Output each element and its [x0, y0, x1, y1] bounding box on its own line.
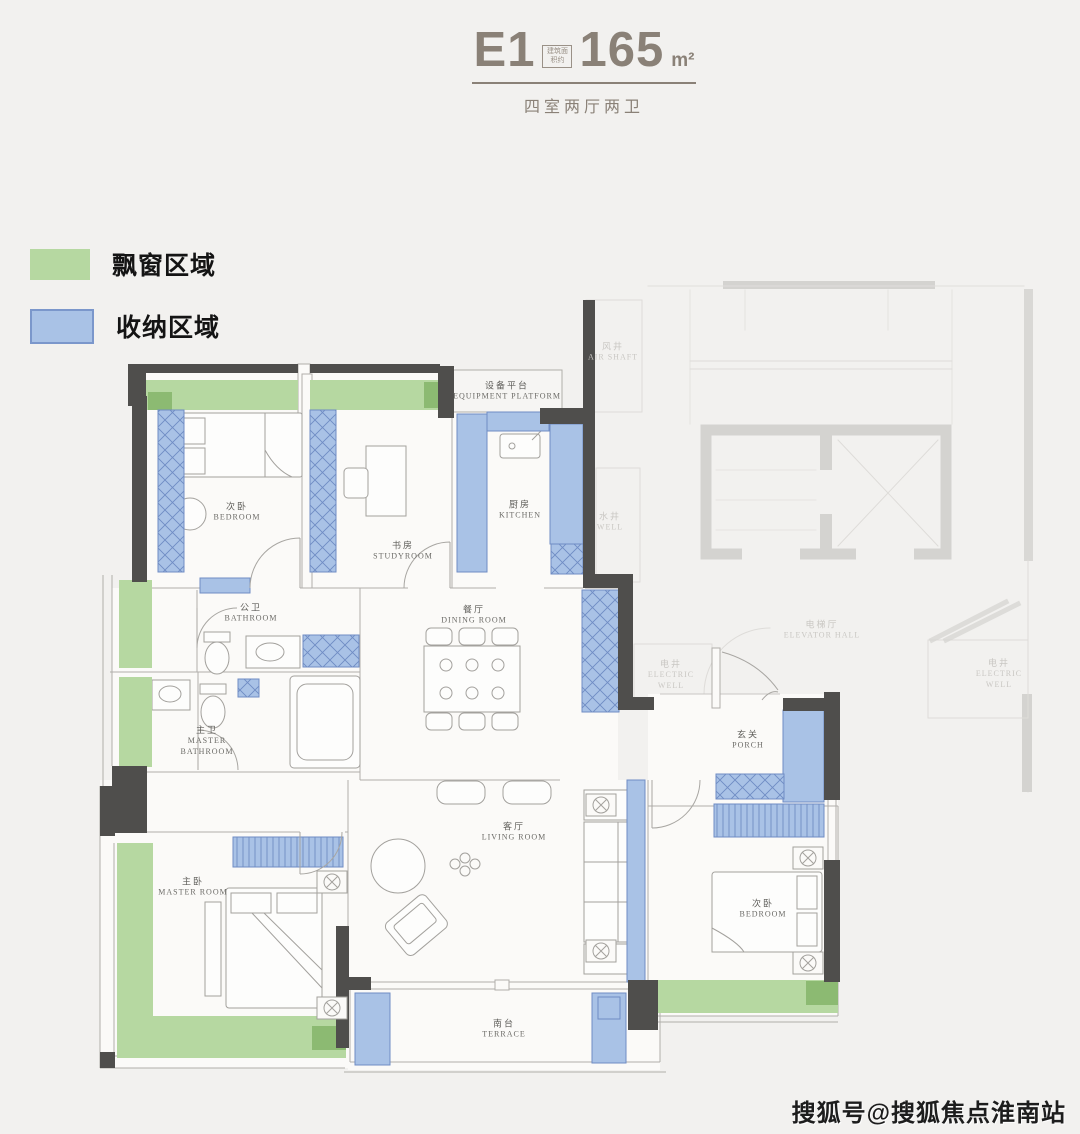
bay-window-zone: [310, 380, 444, 410]
legend: 飘窗区域 收纳区域: [30, 246, 220, 370]
dining-table: [424, 646, 520, 712]
storage-zone-closet: [158, 410, 184, 572]
bay-window-zone: [119, 580, 152, 668]
legend-item-storage: 收纳区域: [30, 308, 220, 344]
storage-zone-counter: [457, 414, 487, 572]
area-unit: m²: [671, 50, 694, 72]
elevator-cab-cross: [838, 440, 938, 546]
storage-zone-terrace: [355, 993, 390, 1065]
storage-zone-cabinet: [551, 544, 583, 574]
plan-subtitle: 四室两厅两卫: [472, 93, 696, 117]
watermark: 搜狐号@搜狐焦点淮南站: [792, 1093, 1066, 1128]
desk: [366, 446, 406, 516]
toilet-tank: [204, 632, 230, 642]
title-divider: [472, 82, 696, 84]
bathtub: [290, 676, 360, 768]
water-well-outline: [596, 468, 640, 582]
legend-item-bay-window: 飘窗区域: [30, 246, 220, 282]
legend-label: 飘窗区域: [112, 246, 216, 282]
column-marker: [793, 847, 823, 869]
toilet-tank-master: [200, 684, 226, 694]
plan-title-row: E1 建筑面积约 165 m²: [472, 26, 696, 75]
toilet: [205, 642, 229, 674]
storage-zone-closet: [310, 410, 336, 572]
plan-title-block: E1 建筑面积约 165 m² 四室两厅两卫: [472, 26, 696, 117]
storage-zone-terrace: [592, 993, 626, 1063]
bay-window-zone: [119, 677, 152, 767]
plan-code: E1: [474, 26, 536, 75]
column-marker: [586, 940, 616, 962]
sofa: [584, 822, 628, 942]
electric-well-right-outline: [928, 640, 1028, 718]
storage-zone-shoe-cabinet: [714, 804, 824, 837]
storage-zone: [200, 578, 250, 593]
column-marker: [793, 952, 823, 974]
storage-zone-cabinet: [550, 424, 583, 544]
floor-plan-page: E1 建筑面积约 165 m² 四室两厅两卫 飘窗区域 收纳区域 次卧 BEDR…: [0, 0, 1080, 1134]
entry-door-leaf: [712, 648, 720, 708]
legend-label: 收纳区域: [116, 308, 220, 344]
storage-zone-porch: [783, 710, 824, 802]
bench: [205, 902, 221, 996]
equipment-platform-outline: [452, 370, 562, 412]
storage-zone-divider: [627, 780, 645, 982]
area-note-badge: 建筑面积约: [542, 45, 572, 69]
storage-swatch: [30, 309, 94, 344]
column-marker: [317, 997, 347, 1019]
bay-window-zone: [117, 1016, 346, 1058]
bay-window-swatch: [30, 249, 90, 280]
floor-plan-svg: [0, 0, 1080, 1134]
coffee-table: [371, 839, 425, 893]
area-value: 165: [579, 26, 664, 75]
toilet-master: [201, 696, 225, 728]
desk-chair: [344, 468, 368, 498]
storage-zone: [303, 635, 359, 667]
storage-zone-porch: [716, 774, 784, 799]
storage-zone-wardrobe: [233, 837, 343, 867]
column-marker: [586, 794, 616, 816]
storage-zone: [238, 679, 259, 697]
storage-zone-counter: [487, 412, 549, 431]
storage-zone-tall-cabinet: [582, 590, 619, 712]
column-marker: [317, 871, 347, 893]
